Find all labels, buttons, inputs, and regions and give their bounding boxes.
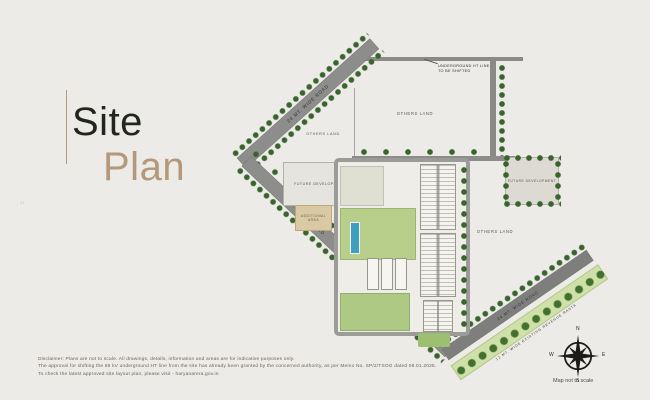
tower-block-1 <box>420 164 456 230</box>
disclaimer-line3: To check the latest approved site layout… <box>38 371 518 378</box>
green-pocket-bottom <box>418 333 450 347</box>
ht-line-bar <box>358 57 523 61</box>
tree-row-vertical-road <box>498 64 506 158</box>
compass-west-label: W <box>549 352 554 358</box>
future-development-right-label: FUTURE DEVELOPMENT <box>508 179 556 183</box>
clubhouse-block-2 <box>381 258 393 290</box>
others-land-top-small: OTHERS LAND <box>294 132 352 136</box>
tower-block-3 <box>423 300 453 332</box>
ht-line-callout: UNDERGROUND HT LINE TO BE SHIFTED <box>438 64 518 74</box>
tree-row-top-road <box>360 148 485 156</box>
future-development-right-parcel: FUTURE DEVELOPMENT <box>505 157 559 205</box>
compass-east-label: E <box>602 352 605 358</box>
site-plan-page: Site Plan 17 UNDERGROUND HT LINE TO BE S… <box>0 0 650 400</box>
compass-icon <box>556 334 600 378</box>
tree-row-parcel-top <box>503 154 561 162</box>
parcel-boundary-vertical <box>354 88 355 160</box>
compass-caption: Map not to scale <box>553 378 593 384</box>
clubhouse-block-3 <box>395 258 407 290</box>
tree-row-cluster-east <box>460 166 468 332</box>
compass-north-label: N <box>576 326 580 332</box>
tower-block-2 <box>420 233 456 297</box>
disclaimer-line2: The approval for shifting the 66 kV unde… <box>38 363 518 370</box>
disclaimer-line1: Disclaimer: Plans are not to scale. All … <box>38 356 518 363</box>
others-land-right: OTHERS LAND <box>466 229 524 234</box>
clubhouse-block-1 <box>367 258 379 290</box>
additional-area-left: ADDITIONAL AREA <box>295 205 332 231</box>
tree-row <box>230 31 371 159</box>
tree-row-parcel-bottom <box>503 200 561 208</box>
swimming-pool <box>350 222 360 254</box>
amenity-lawn-top <box>340 166 384 206</box>
ht-callout-line2: TO BE SHIFTED <box>438 69 518 74</box>
site-map: UNDERGROUND HT LINE TO BE SHIFTED 24 MT.… <box>0 0 650 400</box>
additional-area-left-label: ADDITIONAL AREA <box>301 214 327 222</box>
vertical-road <box>490 60 496 160</box>
road-top-left: 24 MT. WIDE ROAD <box>238 39 379 168</box>
amenity-lawn-bottom <box>340 293 410 331</box>
others-land-top-large: OTHERS LAND <box>384 111 446 116</box>
tree-row-parcel-right <box>554 160 562 202</box>
tree-row-parcel-left <box>502 160 510 202</box>
disclaimer: Disclaimer: Plans are not to scale. All … <box>38 356 518 378</box>
